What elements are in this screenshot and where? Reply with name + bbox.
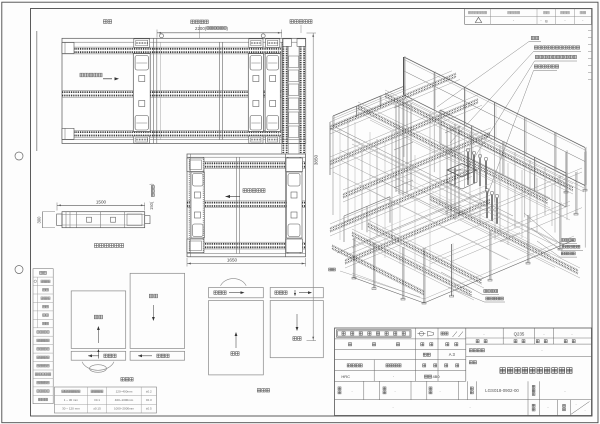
svg-text:·: · [513, 18, 515, 23]
svg-text:4B0: 4B0 [432, 374, 440, 379]
svg-text:·: · [439, 389, 440, 394]
svg-text:±0.1: ±0.1 [94, 398, 100, 402]
svg-text:1500: 1500 [96, 199, 107, 204]
svg-text:·: · [571, 331, 573, 336]
svg-text:HRC: HRC [341, 374, 350, 379]
svg-text:·: · [540, 18, 542, 23]
svg-text:·: · [393, 374, 394, 379]
svg-text:2200(: 2200( [195, 26, 207, 31]
svg-text:3850: 3850 [314, 154, 319, 165]
svg-text:·: · [392, 405, 393, 410]
svg-text:A 3: A 3 [449, 352, 456, 357]
svg-text:120~400mm: 120~400mm [116, 389, 133, 393]
svg-text:LGS018-0902-00: LGS018-0902-00 [485, 388, 519, 393]
svg-text:±0.2: ±0.2 [146, 389, 152, 393]
svg-text:·: · [547, 405, 549, 410]
svg-text:·: · [564, 18, 566, 23]
svg-text:·: · [351, 389, 352, 394]
svg-text:1 ~ 30 mm: 1 ~ 30 mm [64, 398, 79, 402]
svg-text:·: · [584, 408, 585, 413]
svg-text:400~1000mm: 400~1000mm [115, 398, 134, 402]
svg-text:Q235: Q235 [514, 331, 525, 336]
svg-text:±0.15: ±0.15 [93, 407, 101, 411]
svg-text:±0.5: ±0.5 [146, 407, 152, 411]
svg-text:·: · [575, 402, 576, 407]
svg-text:·: · [564, 389, 566, 394]
svg-text:·: · [469, 405, 470, 410]
svg-text:±0.3: ±0.3 [146, 398, 152, 402]
svg-text:30 ~ 120 mm: 30 ~ 120 mm [62, 407, 80, 411]
svg-text:150(: 150( [149, 201, 154, 210]
svg-text:·: · [394, 389, 395, 394]
svg-text:300: 300 [37, 216, 42, 224]
svg-text:·: · [582, 18, 584, 23]
svg-text:·: · [543, 331, 545, 336]
svg-text:·: · [483, 331, 485, 336]
svg-text:1650: 1650 [227, 258, 238, 263]
svg-text:·: · [541, 348, 543, 353]
svg-text:1000~2000mm: 1000~2000mm [114, 407, 135, 411]
